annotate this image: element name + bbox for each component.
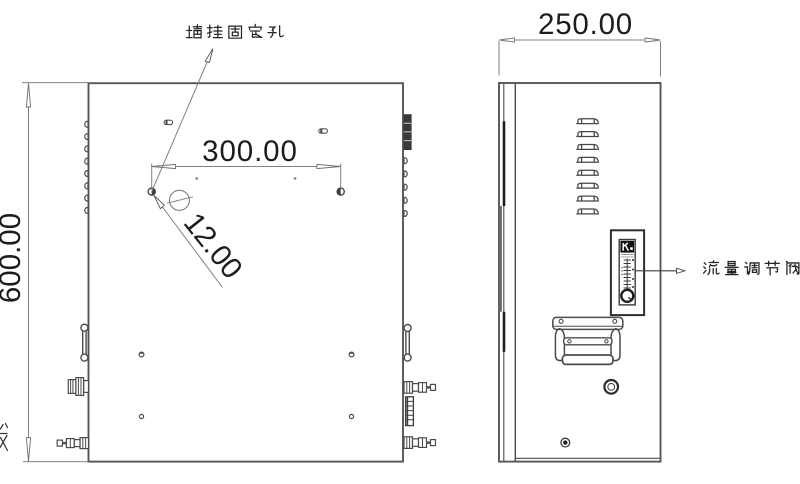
svg-text:300.00: 300.00	[202, 135, 298, 168]
svg-text:250.00: 250.00	[538, 8, 633, 41]
svg-text:600.00: 600.00	[0, 213, 27, 303]
